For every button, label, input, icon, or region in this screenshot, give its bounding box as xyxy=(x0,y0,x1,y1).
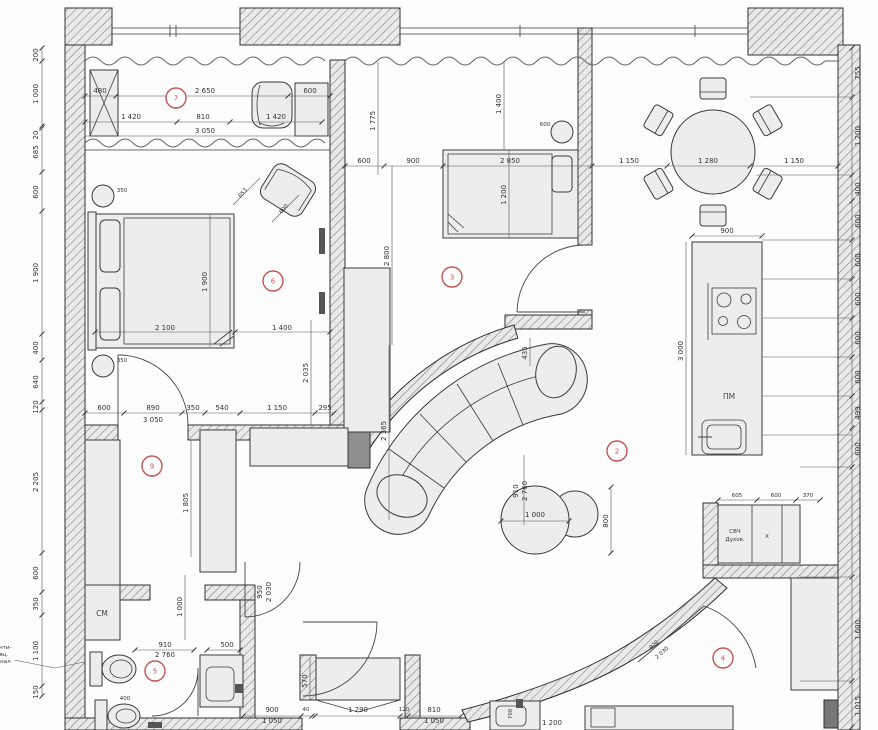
dining-set xyxy=(643,78,783,226)
dim: 605 xyxy=(732,493,743,499)
dim: 600 xyxy=(97,404,110,412)
pouf-room3 xyxy=(551,121,573,143)
dim: 350 xyxy=(32,597,40,610)
dim: 2 650 xyxy=(195,87,215,95)
dim: 1 000 xyxy=(176,597,184,617)
dim: 1 100 xyxy=(32,641,40,661)
dim: 600 xyxy=(854,370,862,383)
washer-label: СМ xyxy=(96,609,108,618)
note-line-1: венти- xyxy=(0,645,12,651)
pillow-3 xyxy=(552,156,572,192)
dim: 350 xyxy=(117,358,128,364)
dim: 810 xyxy=(427,706,440,714)
bed-headboard xyxy=(88,212,96,350)
wall-curved-bottom xyxy=(462,578,727,722)
dim: 500 xyxy=(220,641,233,649)
vanity-faucet xyxy=(235,684,243,693)
dim: 1 150 xyxy=(619,157,639,165)
dim: 400 xyxy=(32,341,40,354)
svg-text:6: 6 xyxy=(271,278,276,286)
balcony-storage-box xyxy=(90,70,118,136)
dim: 1 150 xyxy=(784,157,804,165)
dim: 1 200 xyxy=(854,126,862,146)
wall-top-pier-1 xyxy=(65,8,112,45)
dim: 640 xyxy=(32,375,40,388)
dim: 1 200 xyxy=(542,719,562,727)
dim: 1 400 xyxy=(272,324,292,332)
note-line-2: ляц. xyxy=(0,652,8,658)
dim: 1 400 xyxy=(495,94,503,114)
wardrobe-room3 xyxy=(344,268,390,432)
dim: 1 000 xyxy=(525,511,545,519)
dim: 2 850 xyxy=(500,157,520,165)
dim: 910 xyxy=(512,484,520,497)
kitchen-counter: ПМ xyxy=(692,242,762,455)
dim: 150 xyxy=(32,685,40,698)
wall-post-3 xyxy=(824,700,838,728)
chair xyxy=(700,78,726,99)
door-bedroom6 xyxy=(118,355,188,425)
dim: 600 xyxy=(540,122,551,128)
dim: 900 xyxy=(720,227,733,235)
dim: 600 xyxy=(303,87,316,95)
room-marker-2: 2 xyxy=(607,441,627,461)
microwave-label: СВЧ xyxy=(729,529,741,535)
wall-top-pier-2 xyxy=(240,8,400,45)
dim: 40 xyxy=(303,707,310,713)
note-line-3: канал xyxy=(0,659,11,665)
dim: 1 775 xyxy=(369,111,377,131)
dim: 2 100 xyxy=(155,324,175,332)
bath-block xyxy=(148,722,162,728)
oven-label: Духов. xyxy=(725,537,744,543)
dim: 400 xyxy=(120,696,131,702)
chair xyxy=(752,167,783,200)
dim: 755 xyxy=(854,66,862,79)
dim: 1 015 xyxy=(854,696,862,716)
shoe-bench xyxy=(316,658,400,712)
wardrobe-bottom-right xyxy=(791,578,838,690)
dim: 600 xyxy=(771,493,782,499)
dim: 950 xyxy=(256,585,264,598)
dim: 600 xyxy=(854,442,862,455)
dim: 295 xyxy=(318,404,331,412)
dim: 2 760 xyxy=(155,651,175,659)
svg-text:5: 5 xyxy=(153,668,157,676)
bottom-vanity xyxy=(490,699,540,730)
dim: 1 000 xyxy=(32,84,40,104)
dim: 3 050 xyxy=(143,416,163,424)
dim: 350 xyxy=(117,188,128,194)
dishwasher-label: ПМ xyxy=(723,392,735,401)
dim: 1 805 xyxy=(182,493,190,513)
dim: 350 xyxy=(186,404,199,412)
room-marker-3: 3 xyxy=(442,267,462,287)
dim: 685 xyxy=(32,145,40,158)
toilet xyxy=(90,652,136,686)
dim: 480 xyxy=(93,87,106,95)
dim: 540 xyxy=(215,404,228,412)
svg-text:3: 3 xyxy=(450,274,454,282)
wall-balcony-divider xyxy=(330,60,345,430)
appliance-cabinet: СВЧ Духов. X xyxy=(718,505,800,563)
dim: 2 800 xyxy=(383,246,391,266)
dim: 370 xyxy=(803,493,814,499)
floor-plan: СМ ПМ СВЧ Духов. xyxy=(0,0,878,730)
dim: 2 035 xyxy=(302,363,310,383)
dim: 2 030 xyxy=(265,582,273,602)
dim: 435 xyxy=(521,346,529,359)
dim: 1 290 xyxy=(348,706,368,714)
dim: 900 xyxy=(406,157,419,165)
wall-room3-south xyxy=(505,315,592,329)
dim: 120 xyxy=(32,400,40,413)
svg-text:7: 7 xyxy=(174,95,178,103)
room-marker-5: 5 xyxy=(145,661,165,681)
dim: 3 050 xyxy=(195,127,215,135)
wardrobe-corridor xyxy=(250,428,348,466)
window-1 xyxy=(112,25,240,37)
dim: 3 000 xyxy=(677,341,685,361)
chair xyxy=(752,104,783,137)
pillow-1 xyxy=(100,220,120,272)
dim: 120 xyxy=(399,707,410,713)
dim: 600 xyxy=(854,292,862,305)
room-marker-6: 6 xyxy=(263,271,283,291)
dim: 20 xyxy=(32,131,40,140)
dim: 1 050 xyxy=(262,717,282,725)
dim: 1 200 xyxy=(500,185,508,205)
glazing-wave-balcony-bottom xyxy=(85,139,325,147)
bedroom-armchair xyxy=(257,160,319,219)
dim: 600 xyxy=(854,331,862,344)
dim: 800 xyxy=(602,514,610,527)
dim: 2 365 xyxy=(380,421,388,441)
fridge-label: X xyxy=(765,534,769,540)
svg-text:4: 4 xyxy=(721,655,726,663)
chair xyxy=(643,104,674,137)
dim: 600 xyxy=(32,185,40,198)
dim: 2 030 xyxy=(654,645,670,660)
bidet xyxy=(95,700,162,730)
dim: 1 900 xyxy=(201,272,209,292)
dining-table xyxy=(671,110,755,194)
dim: 653 xyxy=(238,187,250,199)
stool-2 xyxy=(92,355,114,377)
dim: 600 xyxy=(32,566,40,579)
wall-bedroom-south-a xyxy=(85,425,118,440)
door-room3 xyxy=(517,245,585,312)
dim: 2 760 xyxy=(521,481,529,501)
dim: 570 xyxy=(301,674,309,687)
room-marker-7: 7 xyxy=(166,88,186,108)
dim: 1 420 xyxy=(266,113,286,121)
wall-bath-north-b xyxy=(205,585,255,600)
bath-vanity xyxy=(200,655,243,707)
balcony-armchair xyxy=(252,82,292,128)
chair xyxy=(643,167,674,200)
dim: 2 205 xyxy=(32,472,40,492)
dim: 600 xyxy=(854,214,862,227)
stool-1 xyxy=(92,185,114,207)
chair xyxy=(700,205,726,226)
dim: 1 150 xyxy=(267,404,287,412)
dim: 1 600 xyxy=(854,620,862,640)
wall-left-exterior xyxy=(65,45,85,730)
wardrobe-hall-left xyxy=(85,440,120,585)
svg-text:9: 9 xyxy=(150,463,154,471)
furniture: СМ ПМ СВЧ Духов. xyxy=(85,70,838,730)
window-2 xyxy=(400,25,748,37)
dim: 1 420 xyxy=(121,113,141,121)
dim: 400 xyxy=(854,182,862,195)
dim: 499 xyxy=(854,406,862,419)
wardrobe-hall-right xyxy=(200,430,236,572)
dim: 900 xyxy=(265,706,278,714)
dim: 910 xyxy=(158,641,171,649)
bottom-bed xyxy=(585,706,733,730)
wall-top-right-block xyxy=(748,8,843,55)
room-marker-4: 4 xyxy=(713,648,733,668)
dim: 700 xyxy=(508,708,514,719)
dim: 810 xyxy=(196,113,209,121)
dim: 600 xyxy=(854,253,862,266)
floor-plan-drawing: СМ ПМ СВЧ Духов. xyxy=(0,0,878,730)
wall-post-1 xyxy=(319,228,325,254)
room-marker-9: 9 xyxy=(142,456,162,476)
dim: 1 280 xyxy=(698,157,718,165)
dim: 1 900 xyxy=(32,263,40,283)
dim: 600 xyxy=(357,157,370,165)
svg-text:2: 2 xyxy=(615,448,619,456)
wall-post-2 xyxy=(319,292,325,314)
dim: 200 xyxy=(32,48,40,61)
dim: 1 050 xyxy=(424,717,444,725)
glazing-wave-balcony-top xyxy=(85,57,325,65)
wall-cabinet-south xyxy=(703,565,838,578)
dim: 890 xyxy=(146,404,159,412)
